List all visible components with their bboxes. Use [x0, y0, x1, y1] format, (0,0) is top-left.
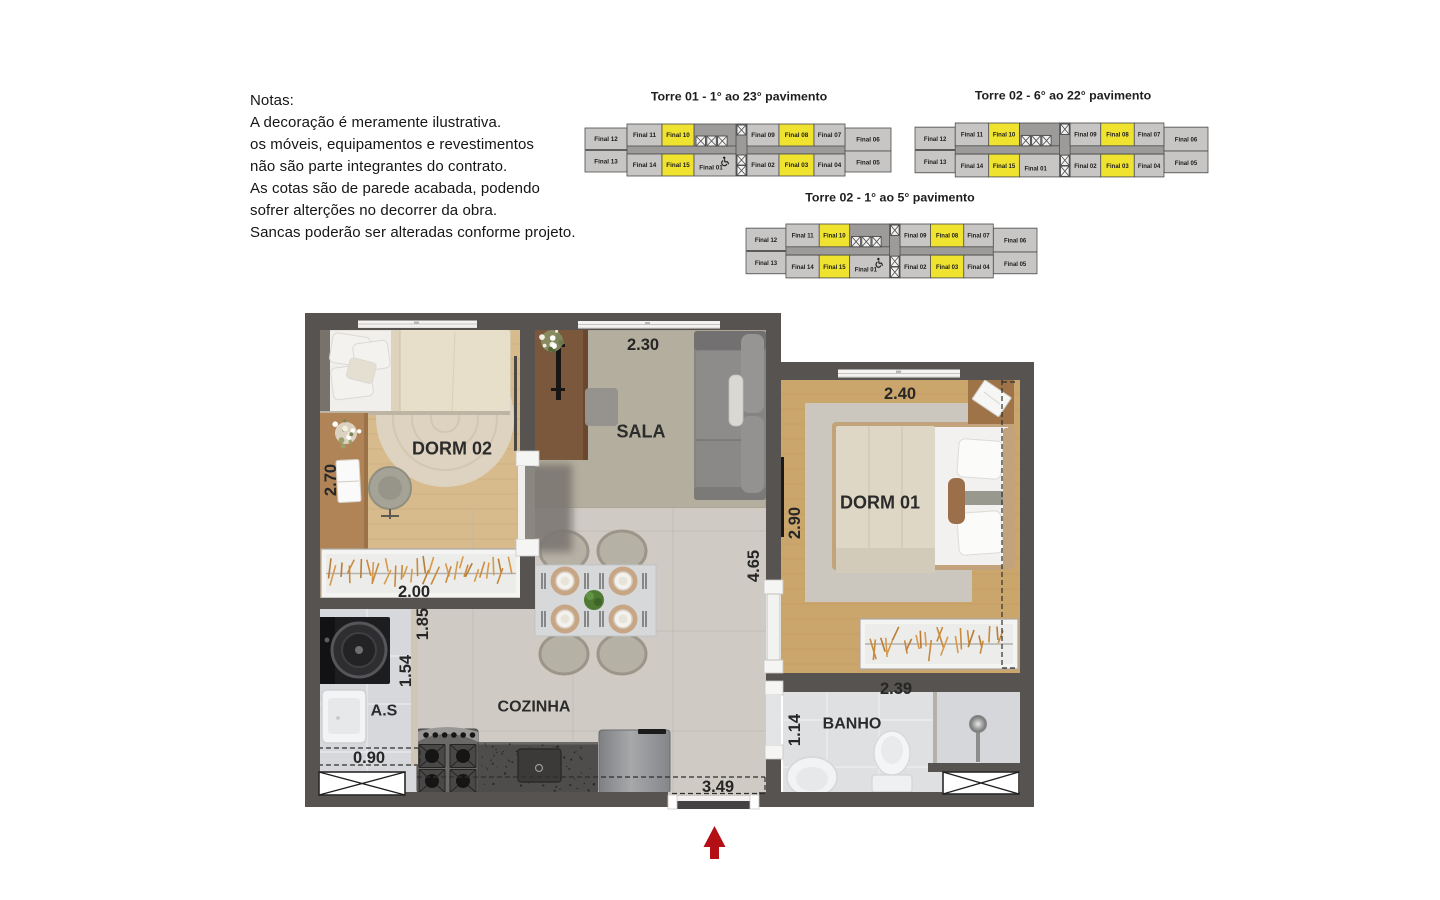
- svg-text:Final 15: Final 15: [666, 162, 690, 169]
- svg-text:DORM 02: DORM 02: [412, 438, 492, 458]
- svg-text:Final 14: Final 14: [961, 163, 984, 170]
- svg-text:Final 09: Final 09: [751, 132, 775, 139]
- svg-text:2.90: 2.90: [786, 507, 804, 539]
- svg-text:2.00: 2.00: [398, 583, 430, 601]
- svg-text:SALA: SALA: [617, 421, 666, 441]
- svg-text:Final 11: Final 11: [792, 232, 814, 239]
- svg-text:1.54: 1.54: [397, 654, 415, 687]
- svg-text:Final 13: Final 13: [755, 260, 778, 267]
- svg-text:BANHO: BANHO: [823, 716, 882, 733]
- svg-text:Final 07: Final 07: [818, 132, 842, 139]
- svg-text:A.S: A.S: [371, 703, 398, 720]
- svg-text:Final 01: Final 01: [855, 266, 878, 273]
- svg-text:Torre 02 - 1° ao 5° pavimento: Torre 02 - 1° ao 5° pavimento: [805, 190, 975, 204]
- svg-text:Final 04: Final 04: [967, 264, 990, 271]
- svg-text:Final 02: Final 02: [1074, 163, 1097, 170]
- svg-text:2.70: 2.70: [322, 464, 340, 496]
- svg-text:2.30: 2.30: [627, 336, 659, 354]
- svg-text:Final 10: Final 10: [993, 131, 1016, 138]
- svg-text:Final 04: Final 04: [818, 162, 842, 169]
- svg-text:Final 13: Final 13: [924, 159, 947, 166]
- svg-text:Final 07: Final 07: [1138, 131, 1161, 138]
- svg-text:Final 04: Final 04: [1138, 163, 1161, 170]
- svg-text:Final 05: Final 05: [1175, 160, 1198, 167]
- svg-text:Final 11: Final 11: [633, 132, 657, 139]
- svg-text:DORM 01: DORM 01: [840, 492, 920, 512]
- svg-text:Final 03: Final 03: [936, 264, 959, 271]
- svg-text:Torre 01 - 1° ao 23° pavimento: Torre 01 - 1° ao 23° pavimento: [651, 89, 828, 103]
- svg-text:Final 12: Final 12: [755, 237, 778, 244]
- svg-text:Final 15: Final 15: [993, 163, 1016, 170]
- svg-text:Final 08: Final 08: [1106, 131, 1129, 138]
- svg-text:Torre 02 - 6° ao 22° pavimento: Torre 02 - 6° ao 22° pavimento: [975, 88, 1152, 102]
- svg-text:Final 06: Final 06: [1004, 237, 1027, 244]
- svg-text:Final 02: Final 02: [751, 162, 775, 169]
- svg-text:2.40: 2.40: [884, 385, 916, 403]
- svg-text:2.39: 2.39: [880, 680, 912, 698]
- svg-text:Final 14: Final 14: [791, 264, 814, 271]
- svg-text:Final 11: Final 11: [961, 131, 984, 138]
- svg-text:Final 13: Final 13: [594, 159, 618, 166]
- svg-text:Final 09: Final 09: [904, 232, 927, 239]
- svg-text:COZINHA: COZINHA: [498, 699, 571, 716]
- svg-text:4.65: 4.65: [745, 550, 763, 582]
- svg-text:3.49: 3.49: [702, 778, 734, 796]
- svg-text:Final 14: Final 14: [633, 162, 657, 169]
- svg-text:Final 03: Final 03: [785, 162, 809, 169]
- svg-text:Final 06: Final 06: [1175, 136, 1198, 143]
- svg-text:Final 12: Final 12: [924, 136, 947, 143]
- svg-text:Final 05: Final 05: [856, 160, 880, 167]
- svg-text:Final 01: Final 01: [1024, 165, 1047, 172]
- svg-text:Final 03: Final 03: [1106, 163, 1129, 170]
- svg-text:Final 15: Final 15: [823, 264, 846, 271]
- svg-text:Final 09: Final 09: [1074, 131, 1097, 138]
- svg-text:Final 08: Final 08: [785, 132, 809, 139]
- svg-text:Final 05: Final 05: [1004, 261, 1027, 268]
- svg-text:Final 08: Final 08: [936, 232, 959, 239]
- svg-text:Final 10: Final 10: [666, 132, 690, 139]
- svg-text:1.85: 1.85: [414, 608, 432, 640]
- svg-text:Final 07: Final 07: [967, 232, 990, 239]
- svg-text:Final 12: Final 12: [594, 136, 618, 143]
- svg-text:Final 06: Final 06: [856, 137, 880, 144]
- svg-text:Final 10: Final 10: [823, 232, 846, 239]
- svg-text:0.90: 0.90: [353, 749, 385, 767]
- svg-text:Final 02: Final 02: [904, 264, 927, 271]
- svg-text:1.14: 1.14: [786, 713, 804, 746]
- svg-text:Final 01: Final 01: [699, 165, 723, 172]
